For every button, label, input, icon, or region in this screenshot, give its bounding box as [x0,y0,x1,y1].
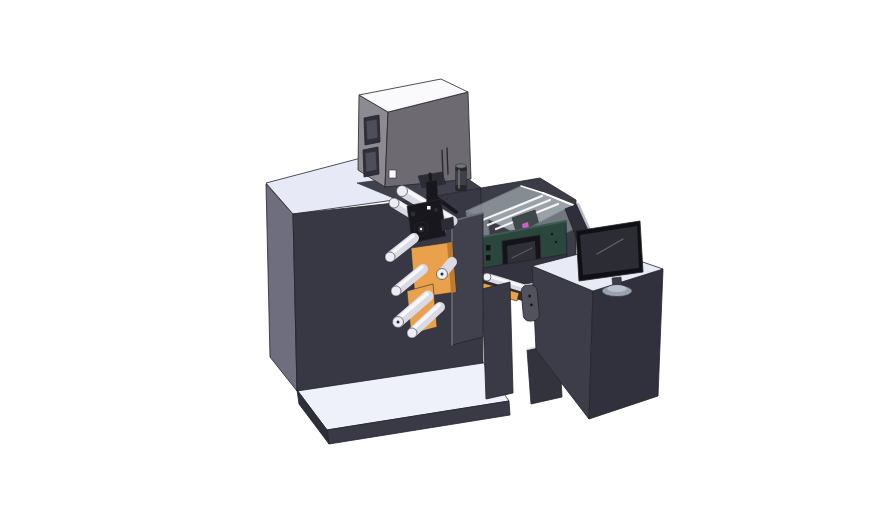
roller-cap [483,273,491,281]
side-plate-face [452,213,483,345]
hmi-dot [551,233,553,235]
printhead-gear-pin [420,228,422,230]
handle-body [521,284,540,321]
roller-cap-pin [441,273,444,276]
hmi-dot [555,241,557,243]
cabinet-rivet [446,198,448,200]
box-label-plate [389,170,396,178]
beacon-light [456,164,467,191]
box-window-upper-inner [366,119,378,140]
machine-leg [482,282,513,399]
printhead-knob [434,208,438,212]
top-equipment-box [358,79,471,187]
roller-cap [389,198,399,208]
roller-cap-pin [397,321,400,324]
hmi-button [486,245,491,251]
box-window-lower-inner [365,151,377,172]
cabinet-rivet [441,195,443,197]
cad-render-viewport [0,0,888,522]
monitor-base-top [607,285,627,292]
roller-cap [391,286,401,296]
beacon-bottom-band [456,185,467,191]
roller-cap [407,328,417,338]
printhead-sensor [427,206,431,210]
roller-cap [397,186,408,197]
side-plate [452,213,483,345]
roller-cap [385,252,395,262]
tension-handle [521,284,540,321]
hmi-button [486,255,491,261]
beacon-cap [456,164,467,168]
printhead-knob [411,212,416,217]
